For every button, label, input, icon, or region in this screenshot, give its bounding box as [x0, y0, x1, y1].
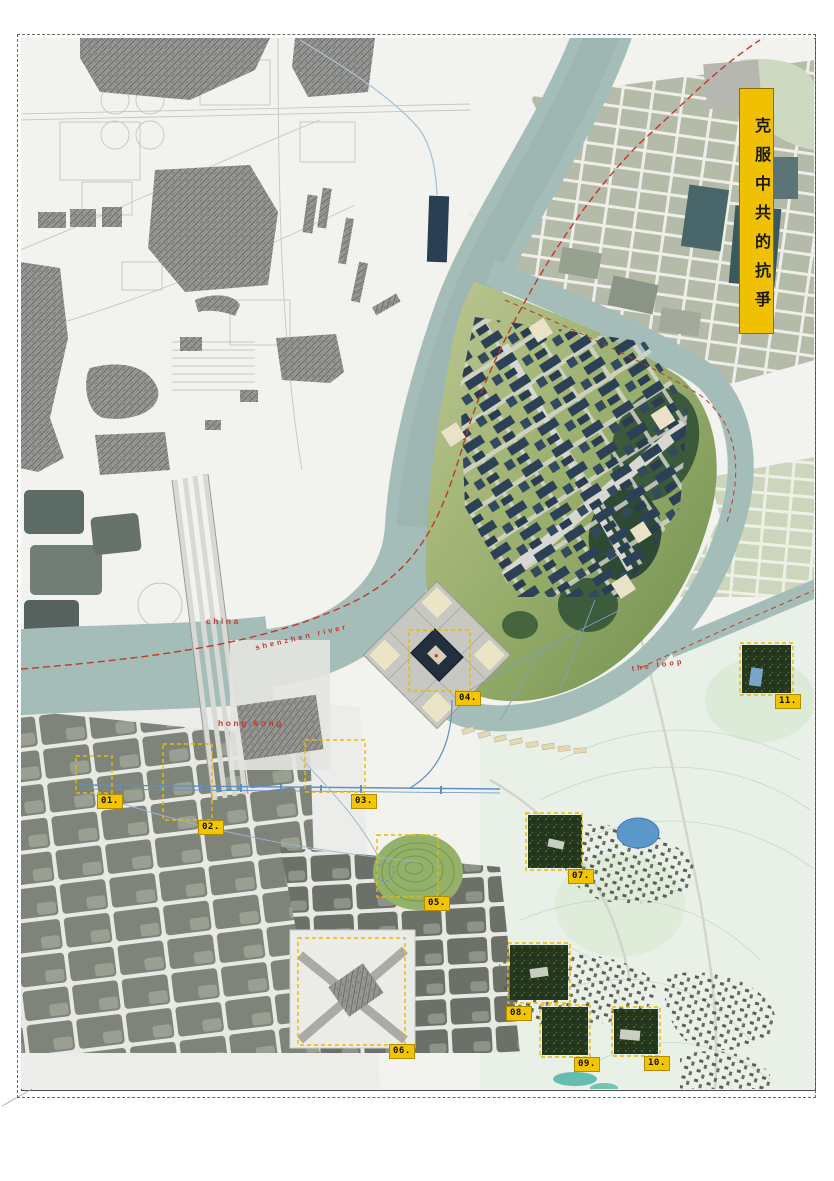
title-block: 1:4000 masterplan 40m 80m 120m 160m 200m…	[0, 1096, 834, 1181]
poster-page: china hong kong shenzhen river the loop	[0, 0, 834, 1181]
map-tag-09: 09.	[574, 1057, 600, 1072]
map-tag-07: 07.	[568, 869, 594, 884]
map-tag-01: 01.	[97, 794, 123, 809]
map-tag-08: 08.	[506, 1006, 532, 1021]
map-tag-05: 05.	[424, 896, 450, 911]
dashed-frame	[17, 34, 816, 1098]
map-tag-02: 02.	[198, 820, 224, 835]
map-tag-04: 04.	[455, 691, 481, 706]
map-tag-03: 03.	[351, 794, 377, 809]
map-tag-11: 11.	[775, 694, 801, 709]
map-tag-06: 06.	[389, 1044, 415, 1059]
protest-banner: 克服中共的抗爭	[739, 88, 774, 334]
map-tag-10: 10.	[644, 1056, 670, 1071]
